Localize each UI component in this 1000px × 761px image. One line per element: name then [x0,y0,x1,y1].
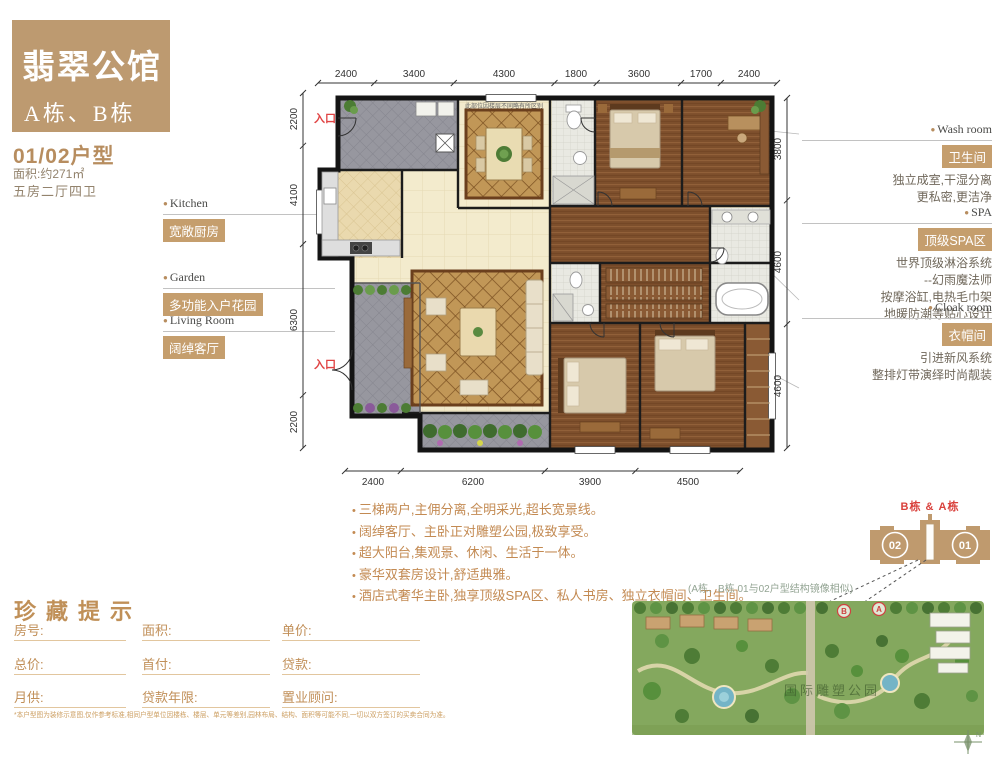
dim-left-4: 2200 [290,410,300,433]
brand-box: 翡翠公馆 A栋、B栋 [12,20,170,132]
field-monthly-payment: 月供: [14,687,126,708]
compass-icon: N [946,728,990,758]
feature-washroom-badge: 卫生间 [942,145,992,168]
dim-right-1: 3800 [773,137,784,160]
selling-point-1: 三梯两户,主佣分离,全明采光,超长宽景线。 [352,500,772,522]
dim-top-5: 3600 [628,69,651,80]
dim-left-2: 4100 [290,183,300,206]
dim-top-4: 1800 [565,69,588,80]
field-loan: 贷款: [282,654,420,675]
site-pond-right [881,674,899,692]
dim-right-2: 4600 [773,250,784,273]
dim-top-1: 2400 [335,69,358,80]
room-study [682,98,772,206]
dim-bottom-3: 3900 [579,477,602,488]
field-consultant: 置业顾问: [282,687,420,708]
unit-area: 面积:约271㎡ [13,165,84,182]
field-room-no: 房号: [14,620,126,641]
field-loan-term: 贷款年限: [142,687,270,708]
feature-spa-en: SPA [802,205,992,224]
feature-cloakroom-badge: 衣帽间 [942,323,992,346]
dim-top-2: 3400 [403,69,426,80]
spa-line-1: 世界顶级淋浴系统 [802,255,992,272]
dim-bottom-1: 2400 [362,477,385,488]
plan-note: 此部位因楼层不同略有所区别 [465,102,543,110]
park-watermark: 国际雕塑公园 [784,683,880,698]
site-master-plan: B A 国际雕塑公园 [632,601,984,735]
entrance-label-top: 入口 [314,112,336,125]
disclaimer: *本户型图为装修示意图,仅作参考标准,相同户型单位因楼栋、楼层、单元等差别,园林… [14,710,432,720]
compass-north-label: N [976,732,981,739]
field-area: 面积: [142,620,270,641]
floor-plan: 入口 入口 此部位因楼层不同略有所区别 2400 3400 4300 1800 … [290,58,800,498]
cloakroom-line-2: 整排灯带演绎时尚靓装 [802,367,992,384]
unit-01-label: 01 [959,540,971,552]
building-locator-diagram: 02 01 [866,512,994,570]
unit-02-label: 02 [889,540,901,552]
site-marker-b-label: B [841,607,847,616]
feature-kitchen-badge: 宽敞厨房 [163,219,225,242]
site-marker-a-label: A [876,605,882,614]
site-road [806,601,815,735]
feature-spa-badge: 顶级SPA区 [918,228,992,251]
field-total-price: 总价: [14,654,126,675]
dim-top-7: 2400 [738,69,761,80]
washroom-line-2: 更私密,更洁净 [802,189,992,206]
dim-left-1: 2200 [290,107,300,130]
feature-cloakroom: Cloak room 衣帽间 引进新风系统 整排灯带演绎时尚靓装 [802,300,992,384]
feature-cloakroom-en: Cloak room [802,300,992,319]
entrance-label-bottom: 入口 [314,358,336,371]
feature-washroom-en: Wash room [802,122,992,141]
brand-subtitle: A栋、B栋 [12,88,170,128]
field-unit-price: 单价: [282,620,420,641]
selling-point-2: 阔绰客厅、主卧正对雕塑公园,极致享受。 [352,522,772,544]
spa-line-2: --幻雨魔法师 [802,272,992,289]
selling-point-3: 超大阳台,集观景、休闲、生活于一体。 [352,543,772,565]
dim-right-3: 4600 [773,374,784,397]
feature-living-room-badge: 阔绰客厅 [163,336,225,359]
cloakroom-line-1: 引进新风系统 [802,350,992,367]
dim-left-3: 6300 [290,308,300,331]
field-down-payment: 首付: [142,654,270,675]
room-corridor [550,206,710,263]
building-core-shaft [926,524,934,560]
washroom-line-1: 独立成室,干湿分离 [802,172,992,189]
flyer-page: 翡翠公馆 A栋、B栋 01/02户型 面积:约271㎡ 五房二厅四卫 Kitch… [0,0,1000,761]
dim-bottom-2: 6200 [462,477,485,488]
dim-top-3: 4300 [493,69,516,80]
locator-caption: (A栋、B栋 01与02户型结构镜像相似) [688,580,853,595]
feature-washroom: Wash room 卫生间 独立成室,干湿分离 更私密,更洁净 [802,122,992,206]
dim-bottom-4: 4500 [677,477,700,488]
unit-rooms: 五房二厅四卫 [13,181,97,200]
dim-top-6: 1700 [690,69,713,80]
brand-title: 翡翠公馆 [12,20,170,88]
